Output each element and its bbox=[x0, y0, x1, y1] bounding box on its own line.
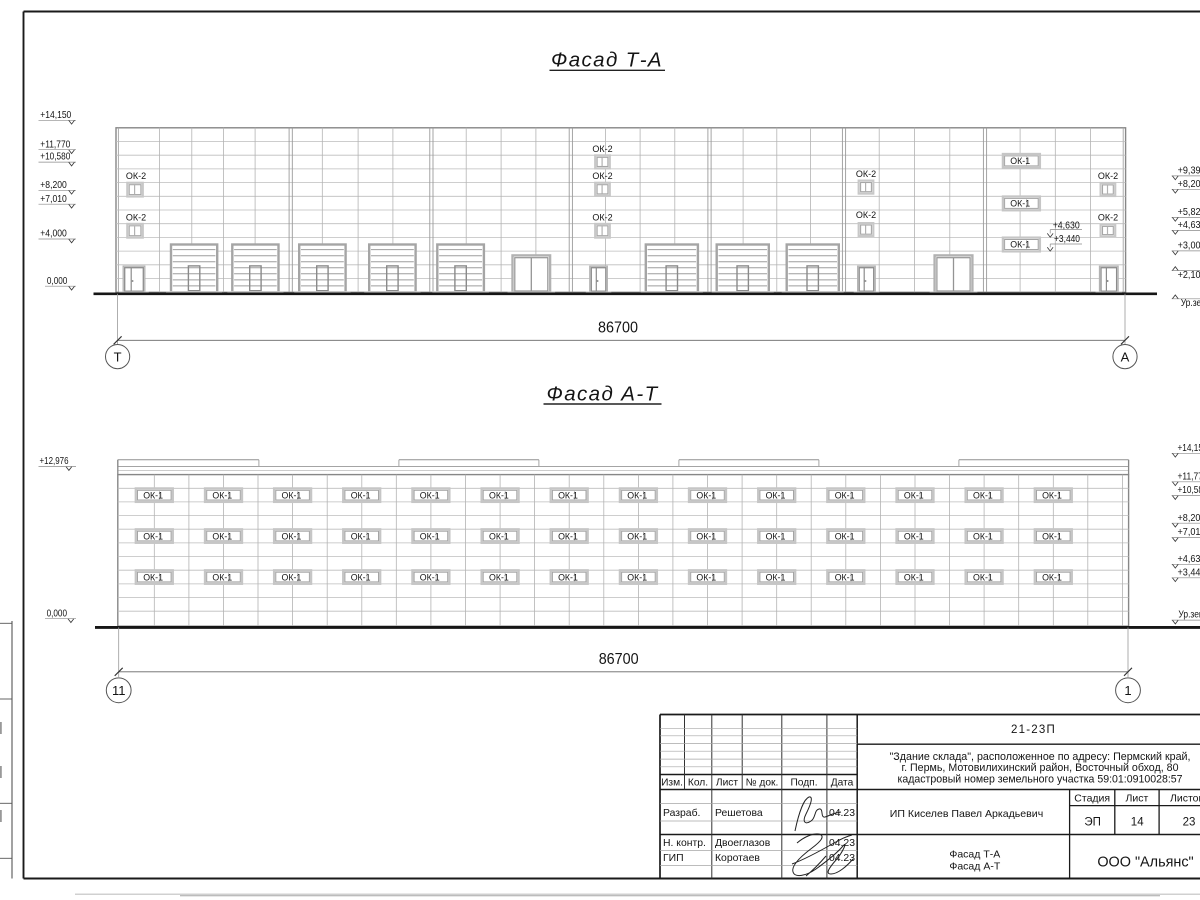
svg-text:Фасад А-Т: Фасад А-Т bbox=[547, 383, 659, 406]
svg-text:Листов: Листов bbox=[1170, 792, 1200, 804]
svg-text:ОК-1: ОК-1 bbox=[835, 572, 855, 582]
svg-text:Решетова: Решетова bbox=[715, 808, 763, 819]
svg-text:Фасад Т-А: Фасад Т-А bbox=[551, 49, 663, 72]
svg-text:ОК-2: ОК-2 bbox=[1098, 212, 1118, 222]
svg-text:ОК-1: ОК-1 bbox=[904, 490, 924, 500]
svg-text:21-23П: 21-23П bbox=[1011, 724, 1056, 736]
svg-text:ОК-1: ОК-1 bbox=[1042, 572, 1062, 582]
svg-text:+12,976: +12,976 bbox=[40, 455, 69, 467]
svg-text:ОК-1: ОК-1 bbox=[696, 531, 716, 541]
svg-text:ОК-1: ОК-1 bbox=[420, 572, 440, 582]
svg-text:ОК-1: ОК-1 bbox=[420, 490, 440, 500]
svg-text:14: 14 bbox=[1131, 817, 1144, 829]
svg-text:Т: Т bbox=[114, 349, 122, 364]
svg-text:+10,580: +10,580 bbox=[40, 151, 70, 163]
svg-text:Разраб.: Разраб. bbox=[663, 807, 700, 819]
svg-text:ОК-1: ОК-1 bbox=[282, 531, 302, 541]
svg-text:+11,770: +11,770 bbox=[1178, 470, 1200, 482]
svg-text:Стадия: Стадия bbox=[1074, 792, 1110, 804]
svg-text:ОК-2: ОК-2 bbox=[592, 144, 612, 154]
svg-text:ОК-1: ОК-1 bbox=[282, 490, 302, 500]
svg-text:ОК-1: ОК-1 bbox=[627, 572, 647, 582]
svg-text:ОК-1: ОК-1 bbox=[766, 531, 786, 541]
svg-text:А: А bbox=[1121, 349, 1130, 364]
svg-text:ОК-1: ОК-1 bbox=[696, 572, 716, 582]
svg-text:ОК-2: ОК-2 bbox=[126, 171, 146, 181]
svg-text:+3,000: +3,000 bbox=[1178, 240, 1200, 252]
svg-text:"Здание склада", расположенное: "Здание склада", расположенное по адресу… bbox=[890, 751, 1191, 763]
svg-text:ОК-1: ОК-1 bbox=[627, 490, 647, 500]
svg-text:ОК-2: ОК-2 bbox=[856, 169, 876, 179]
svg-text:+8,200: +8,200 bbox=[1178, 512, 1200, 524]
svg-text:Н. контр.: Н. контр. bbox=[663, 838, 706, 849]
svg-text:ОК-1: ОК-1 bbox=[627, 531, 647, 541]
svg-text:№ док.: № док. bbox=[746, 777, 779, 788]
svg-text:+5,820: +5,820 bbox=[1178, 206, 1200, 218]
svg-text:11: 11 bbox=[112, 683, 126, 698]
svg-text:+7,010: +7,010 bbox=[1178, 526, 1200, 538]
svg-text:ОК-1: ОК-1 bbox=[212, 490, 232, 500]
svg-text:ОК-1: ОК-1 bbox=[904, 572, 924, 582]
svg-text:Ур.земли: Ур.земли bbox=[1178, 609, 1200, 621]
svg-text:+3,440: +3,440 bbox=[1054, 233, 1080, 245]
svg-text:г. Пермь, Мотовилихинский райо: г. Пермь, Мотовилихинский район, Восточн… bbox=[902, 762, 1179, 774]
svg-text:ОК-1: ОК-1 bbox=[973, 490, 993, 500]
svg-text:+11,770: +11,770 bbox=[40, 138, 70, 150]
svg-text:ОК-1: ОК-1 bbox=[558, 531, 578, 541]
svg-text:ИП Киселев Павел Аркадьевич: ИП Киселев Павел Аркадьевич bbox=[890, 808, 1043, 820]
svg-text:+8,200: +8,200 bbox=[40, 179, 67, 191]
svg-text:ОК-1: ОК-1 bbox=[1010, 199, 1030, 209]
svg-text:ОК-1: ОК-1 bbox=[835, 531, 855, 541]
svg-text:ОК-1: ОК-1 bbox=[212, 531, 232, 541]
svg-text:ОК-1: ОК-1 bbox=[904, 531, 924, 541]
svg-text:ОК-2: ОК-2 bbox=[856, 210, 876, 220]
svg-text:+14,150: +14,150 bbox=[1178, 442, 1200, 454]
svg-text:+8,200: +8,200 bbox=[1178, 178, 1200, 190]
svg-text:ОК-1: ОК-1 bbox=[351, 572, 371, 582]
svg-text:+4,630: +4,630 bbox=[1178, 219, 1200, 231]
svg-text:ГИП: ГИП bbox=[663, 853, 684, 864]
svg-text:+4,000: +4,000 bbox=[40, 228, 67, 240]
svg-text:Двоеглазов: Двоеглазов bbox=[715, 838, 771, 849]
svg-text:Лист: Лист bbox=[1125, 792, 1148, 804]
svg-text:0,000: 0,000 bbox=[47, 275, 68, 287]
svg-text:ОК-1: ОК-1 bbox=[766, 572, 786, 582]
svg-text:ОК-1: ОК-1 bbox=[212, 572, 232, 582]
svg-text:ОК-1: ОК-1 bbox=[696, 490, 716, 500]
svg-text:ОК-1: ОК-1 bbox=[489, 490, 509, 500]
svg-text:ОК-1: ОК-1 bbox=[143, 531, 163, 541]
svg-text:+14,150: +14,150 bbox=[40, 109, 71, 121]
svg-text:Дата: Дата bbox=[831, 777, 854, 788]
svg-text:ОК-2: ОК-2 bbox=[592, 212, 612, 222]
svg-text:ООО "Альянс": ООО "Альянс" bbox=[1097, 855, 1193, 871]
svg-text:Лист: Лист bbox=[716, 777, 738, 788]
svg-text:Коротаев: Коротаев bbox=[715, 853, 760, 864]
svg-text:ОК-1: ОК-1 bbox=[282, 572, 302, 582]
svg-text:ОК-1: ОК-1 bbox=[973, 531, 993, 541]
svg-text:86700: 86700 bbox=[599, 651, 639, 668]
svg-text:86700: 86700 bbox=[598, 320, 638, 337]
svg-text:ОК-1: ОК-1 bbox=[1010, 156, 1030, 166]
svg-text:+9,390: +9,390 bbox=[1178, 165, 1200, 177]
svg-text:ОК-1: ОК-1 bbox=[420, 531, 440, 541]
svg-text:ОК-1: ОК-1 bbox=[143, 490, 163, 500]
svg-text:Фасад Т-А: Фасад Т-А bbox=[949, 848, 1000, 860]
svg-text:+7,010: +7,010 bbox=[40, 193, 67, 205]
svg-text:ОК-1: ОК-1 bbox=[1042, 490, 1062, 500]
svg-text:ЭП: ЭП bbox=[1084, 817, 1101, 829]
svg-text:ОК-2: ОК-2 bbox=[592, 171, 612, 181]
svg-text:ОК-1: ОК-1 bbox=[1010, 240, 1030, 250]
svg-text:04.23: 04.23 bbox=[829, 853, 855, 864]
svg-text:0,000: 0,000 bbox=[47, 607, 68, 619]
svg-text:Подп.: Подп. bbox=[790, 777, 817, 788]
svg-text:ОК-1: ОК-1 bbox=[351, 531, 371, 541]
svg-text:ОК-1: ОК-1 bbox=[973, 572, 993, 582]
svg-text:Фасад А-Т: Фасад А-Т bbox=[949, 860, 1000, 872]
svg-text:23: 23 bbox=[1183, 817, 1196, 829]
svg-text:ОК-2: ОК-2 bbox=[1098, 171, 1118, 181]
svg-text:ОК-1: ОК-1 bbox=[351, 490, 371, 500]
svg-text:Изм.: Изм. bbox=[661, 777, 683, 788]
svg-text:Кол.: Кол. bbox=[688, 777, 708, 788]
svg-text:04.23: 04.23 bbox=[829, 808, 855, 819]
svg-text:ОК-2: ОК-2 bbox=[126, 212, 146, 222]
svg-text:+10,580: +10,580 bbox=[1178, 484, 1200, 496]
svg-text:ОК-1: ОК-1 bbox=[835, 490, 855, 500]
svg-text:ОК-1: ОК-1 bbox=[558, 572, 578, 582]
svg-text:ОК-1: ОК-1 bbox=[558, 490, 578, 500]
svg-text:+4,630: +4,630 bbox=[1178, 553, 1200, 565]
svg-text:кадастровый номер земельного у: кадастровый номер земельного участка 59:… bbox=[898, 773, 1183, 785]
svg-text:ОК-1: ОК-1 bbox=[1042, 531, 1062, 541]
svg-text:ОК-1: ОК-1 bbox=[143, 572, 163, 582]
svg-text:+3,440: +3,440 bbox=[1178, 566, 1200, 578]
svg-text:ОК-1: ОК-1 bbox=[489, 572, 509, 582]
svg-text:1: 1 bbox=[1124, 683, 1131, 698]
svg-text:ОК-1: ОК-1 bbox=[766, 490, 786, 500]
svg-text:ОК-1: ОК-1 bbox=[489, 531, 509, 541]
